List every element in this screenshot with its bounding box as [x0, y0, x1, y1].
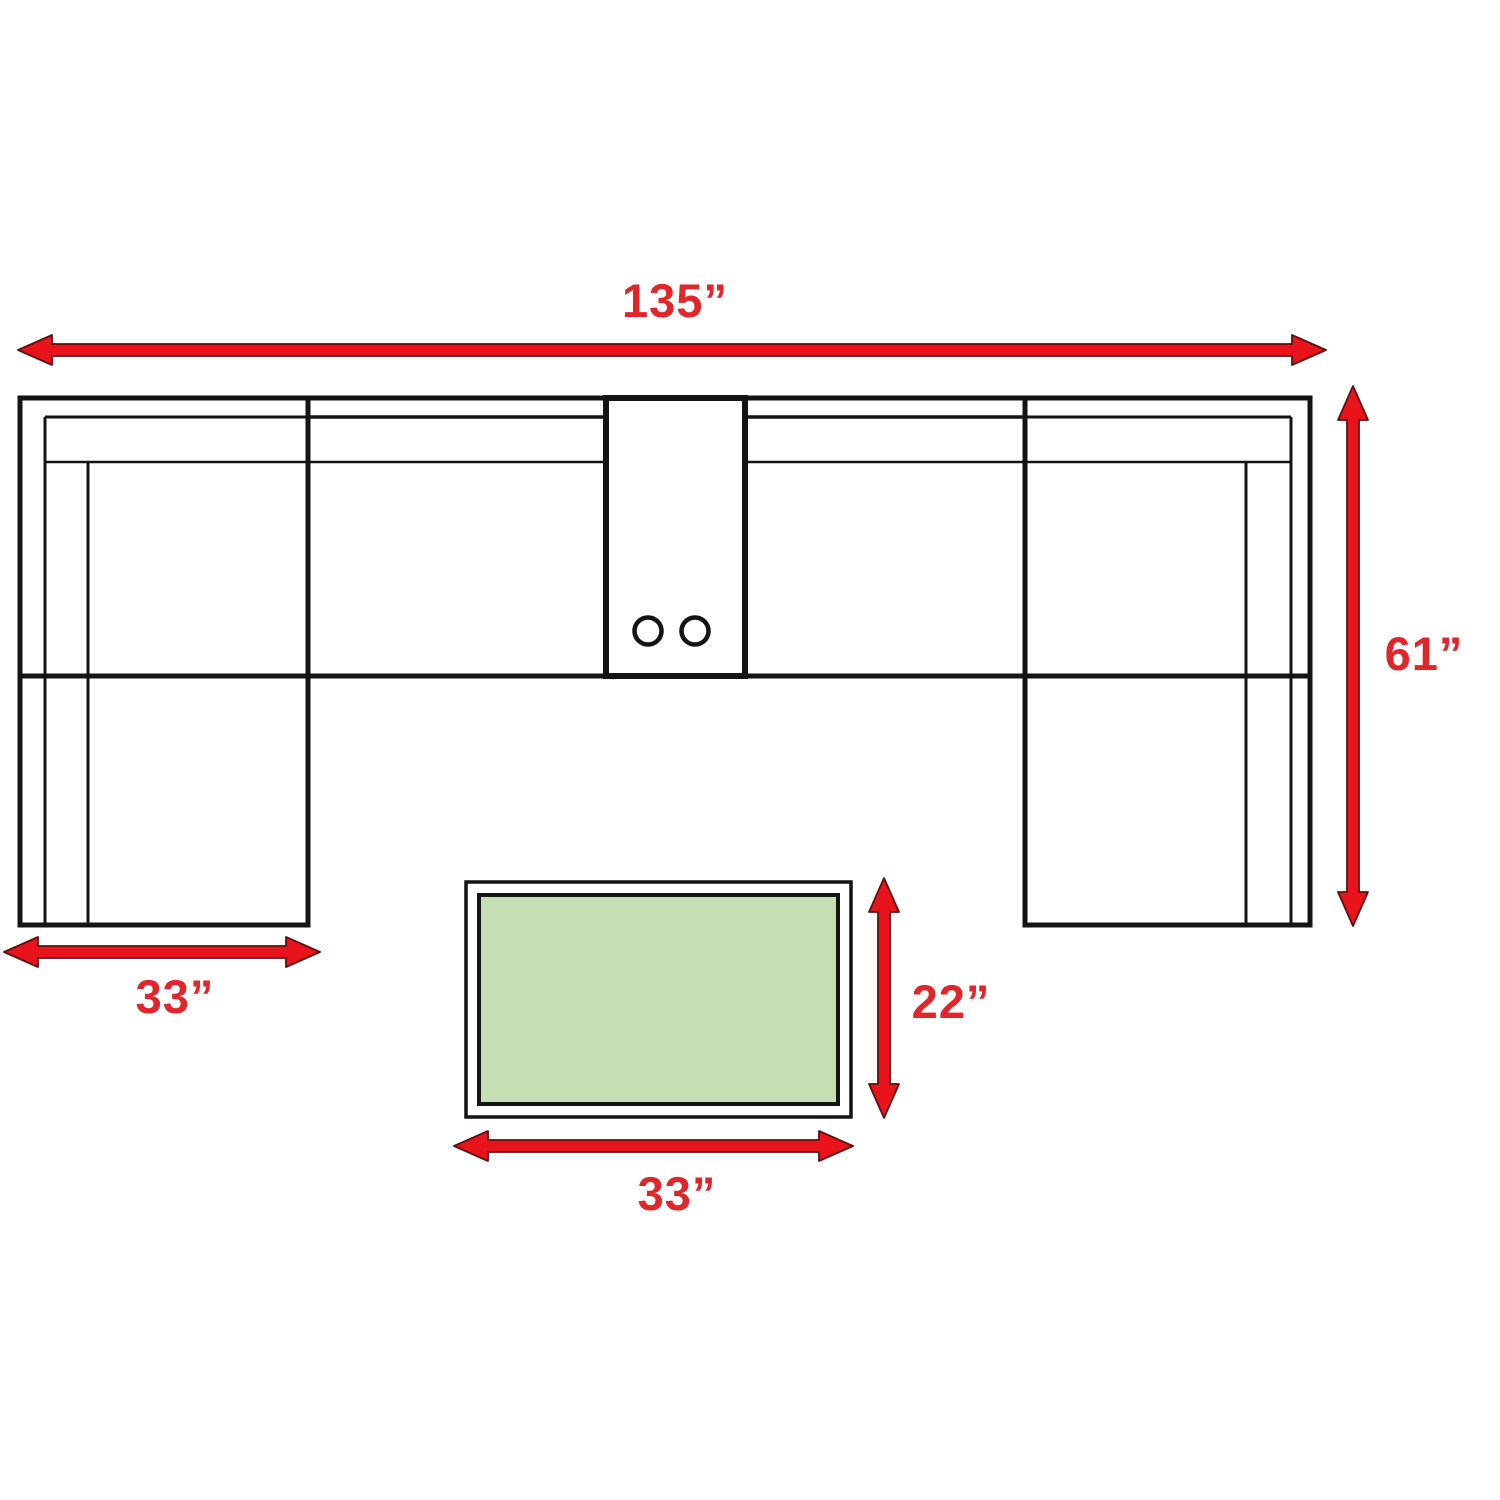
sofa-middle-right-seat: [745, 398, 1025, 676]
table-width-arrow: [454, 1131, 853, 1161]
cupholder-icon: [682, 618, 709, 645]
table-depth-label: 22”: [912, 975, 991, 1028]
sectional-sofa-outline: [20, 398, 1310, 925]
coffee-table: [466, 882, 851, 1117]
sofa-left-chaise: [20, 676, 308, 925]
sofa-middle-left-seat: [308, 398, 606, 676]
sofa-width-label: 135”: [622, 274, 728, 327]
sofa-depth-arrow: [1338, 386, 1368, 926]
table-depth-arrow: [869, 878, 899, 1118]
furniture-dimension-diagram: 135” 61” 33” 22” 33”: [0, 0, 1500, 1500]
sofa-console: [606, 398, 745, 676]
cupholder-icon: [635, 618, 662, 645]
sofa-right-chaise: [1025, 676, 1310, 925]
sofa-left-corner-section: [20, 398, 308, 676]
sofa-depth-label: 61”: [1385, 627, 1464, 680]
sofa-width-arrow: [18, 335, 1326, 365]
sofa-right-corner-section: [1025, 398, 1310, 676]
chaise-width-label: 33”: [136, 970, 215, 1023]
table-width-label: 33”: [638, 1167, 717, 1220]
coffee-table-top: [479, 895, 838, 1104]
floorplan-canvas: 135” 61” 33” 22” 33”: [0, 0, 1500, 1500]
chaise-width-arrow: [4, 937, 320, 967]
